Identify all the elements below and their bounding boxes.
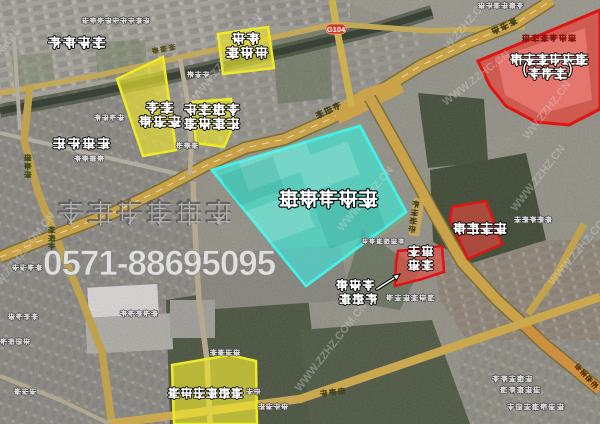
svg-text:G104: G104 [327,25,346,34]
svg-text:0571-88695095: 0571-88695095 [43,244,276,283]
